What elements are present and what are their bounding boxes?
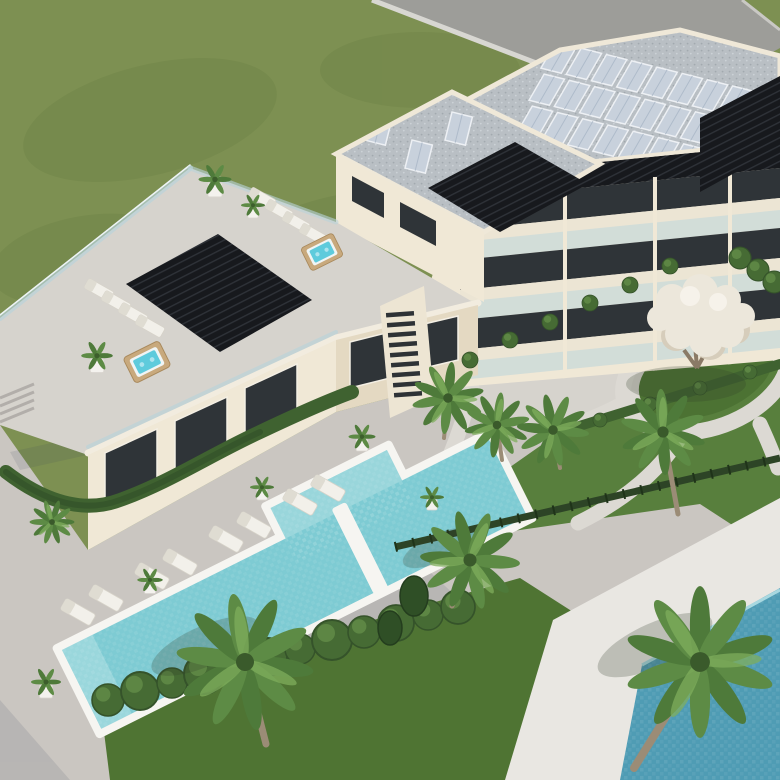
conifer (378, 611, 402, 645)
conifer (400, 576, 428, 616)
rendering-canvas (0, 0, 780, 780)
scene-root (0, 0, 780, 780)
